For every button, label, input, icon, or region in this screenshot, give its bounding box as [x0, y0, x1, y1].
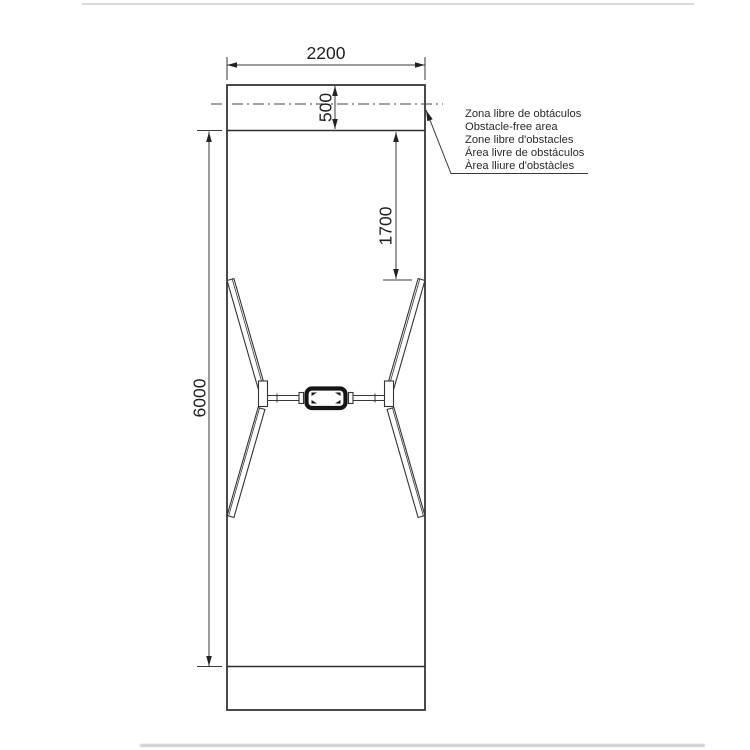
joint-plate-left [259, 381, 268, 407]
swing-frame-plan [227, 279, 425, 518]
legend-line-pt: Área livre de obstáculos [465, 146, 585, 159]
leg-edge-line [232, 279, 263, 387]
arrowhead-down [206, 656, 212, 666]
leg-edge-line [389, 279, 420, 387]
beam-connector-left [299, 393, 304, 404]
dimension-500: 500 [316, 86, 338, 129]
leg-edge-line [392, 408, 423, 516]
arrowhead-left [227, 62, 237, 68]
technical-drawing-page: 2200 500 1700 6000 [0, 0, 750, 750]
legend-line-fr: Zone libre d'obstacles [465, 134, 574, 146]
joint-plate-right [385, 381, 394, 407]
legend-line-en: Obstacle-free area [465, 121, 558, 133]
legend-line-es: Zona libre de obtáculos [465, 108, 582, 120]
arrowhead-down [393, 269, 399, 279]
arrowhead-up [393, 132, 399, 142]
dimension-1700: 1700 [376, 132, 413, 280]
beam-connector-right [349, 393, 354, 404]
arrowhead-right [415, 62, 425, 68]
arrowhead-up [206, 132, 212, 142]
legend-obstacle-free: Zona libre de obtáculos Obstacle-free ar… [465, 108, 585, 172]
dimension-500-label: 500 [316, 93, 336, 122]
swing-plan-view-drawing: 2200 500 1700 6000 [0, 0, 750, 750]
dimension-6000: 6000 [190, 132, 212, 667]
leader-arrowhead [426, 110, 433, 121]
dimension-1700-label: 1700 [376, 206, 396, 245]
leg-edge-line [229, 408, 260, 516]
dimension-2200: 2200 [227, 43, 425, 80]
dimension-6000-label: 6000 [190, 378, 210, 417]
bearing-sleeve [307, 389, 346, 409]
legend-line-ca: Àrea lliure d'obstàcles [465, 159, 575, 172]
dimension-2200-label: 2200 [307, 43, 346, 63]
